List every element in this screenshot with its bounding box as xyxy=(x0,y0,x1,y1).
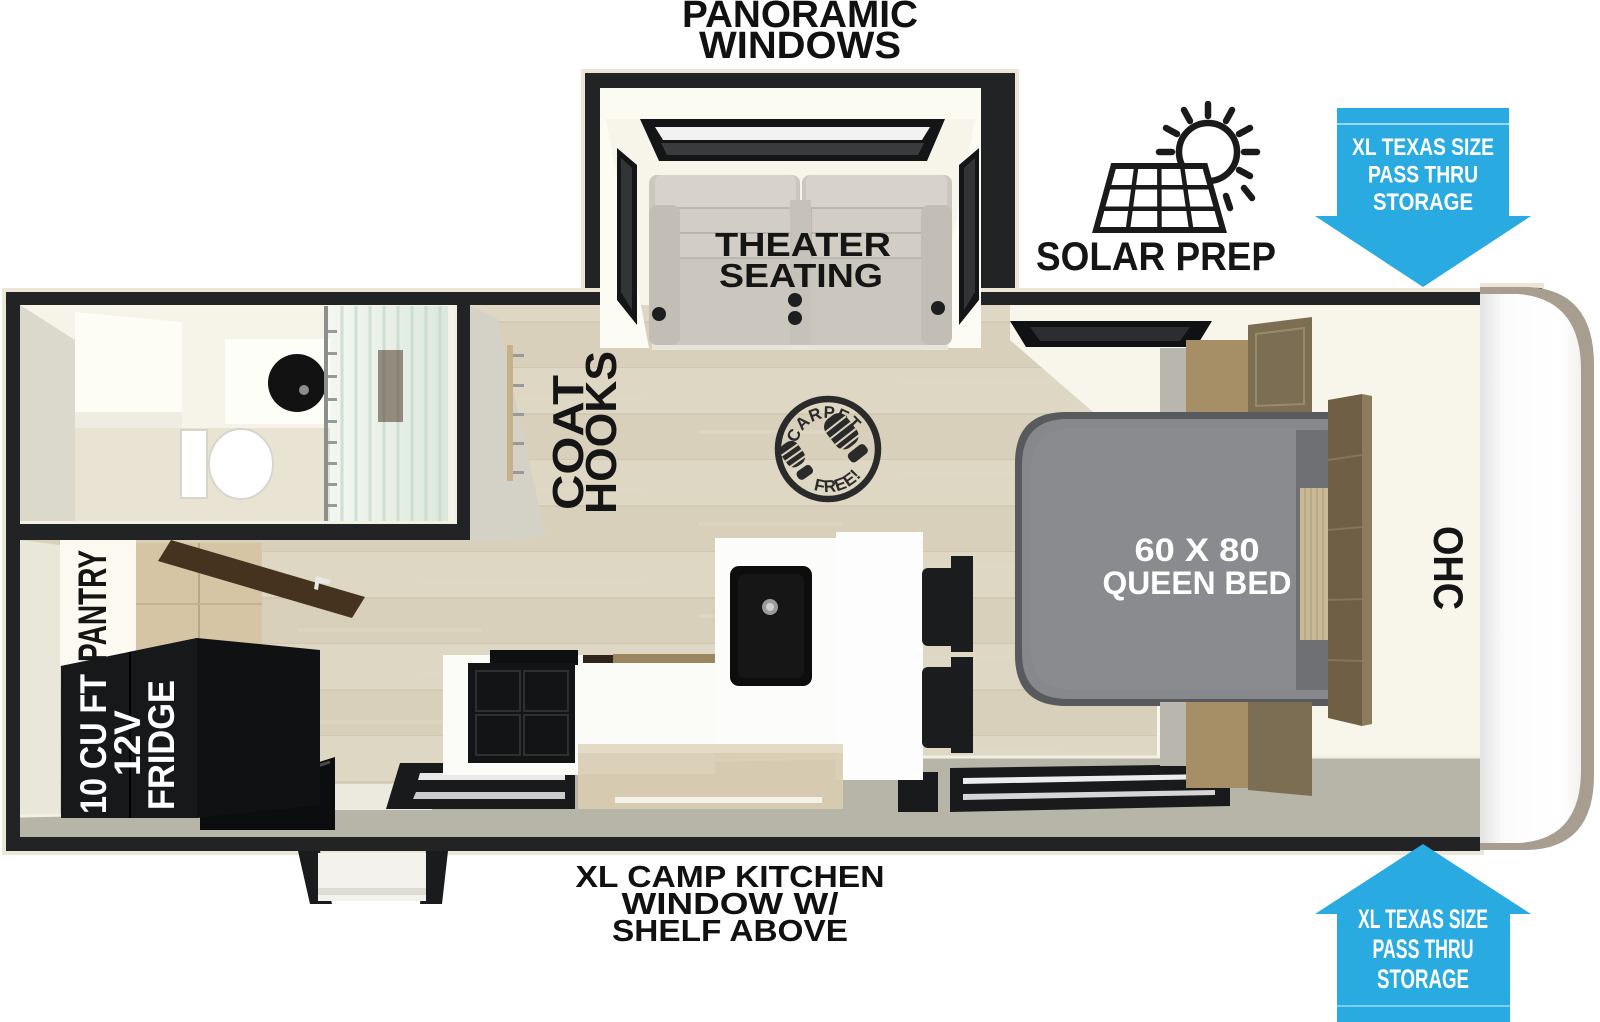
svg-text:XL TEXAS SIZE: XL TEXAS SIZE xyxy=(1352,134,1494,161)
svg-text:HOOKS: HOOKS xyxy=(577,351,626,514)
svg-text:SOLAR PREP: SOLAR PREP xyxy=(1036,235,1276,279)
svg-text:WINDOWS: WINDOWS xyxy=(699,25,901,67)
svg-text:STORAGE: STORAGE xyxy=(1373,189,1473,216)
svg-text:FRIDGE: FRIDGE xyxy=(141,680,182,810)
svg-text:60 X 80: 60 X 80 xyxy=(1135,532,1260,568)
svg-text:STORAGE: STORAGE xyxy=(1377,964,1469,994)
svg-text:SEATING: SEATING xyxy=(719,257,883,294)
svg-text:PASS THRU: PASS THRU xyxy=(1373,934,1474,964)
svg-text:PASS THRU: PASS THRU xyxy=(1368,162,1478,189)
svg-text:SHELF ABOVE: SHELF ABOVE xyxy=(612,913,848,948)
svg-text:PANTRY: PANTRY xyxy=(71,550,115,662)
svg-text:XL TEXAS SIZE: XL TEXAS SIZE xyxy=(1358,904,1488,934)
svg-text:OHC: OHC xyxy=(1425,526,1472,610)
svg-text:QUEEN BED: QUEEN BED xyxy=(1103,565,1292,601)
